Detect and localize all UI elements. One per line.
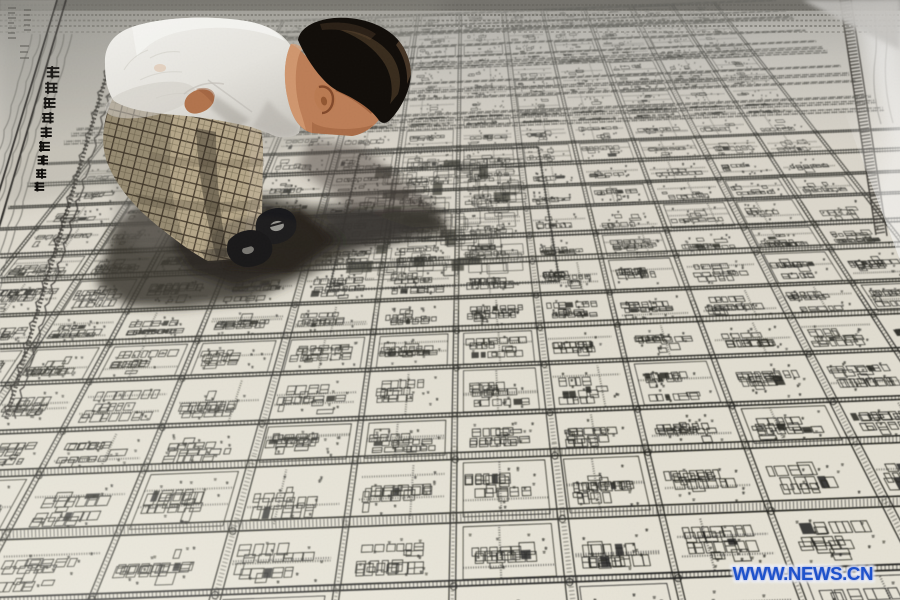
svg-text:WWW.NEWS.CN: WWW.NEWS.CN — [733, 563, 873, 584]
